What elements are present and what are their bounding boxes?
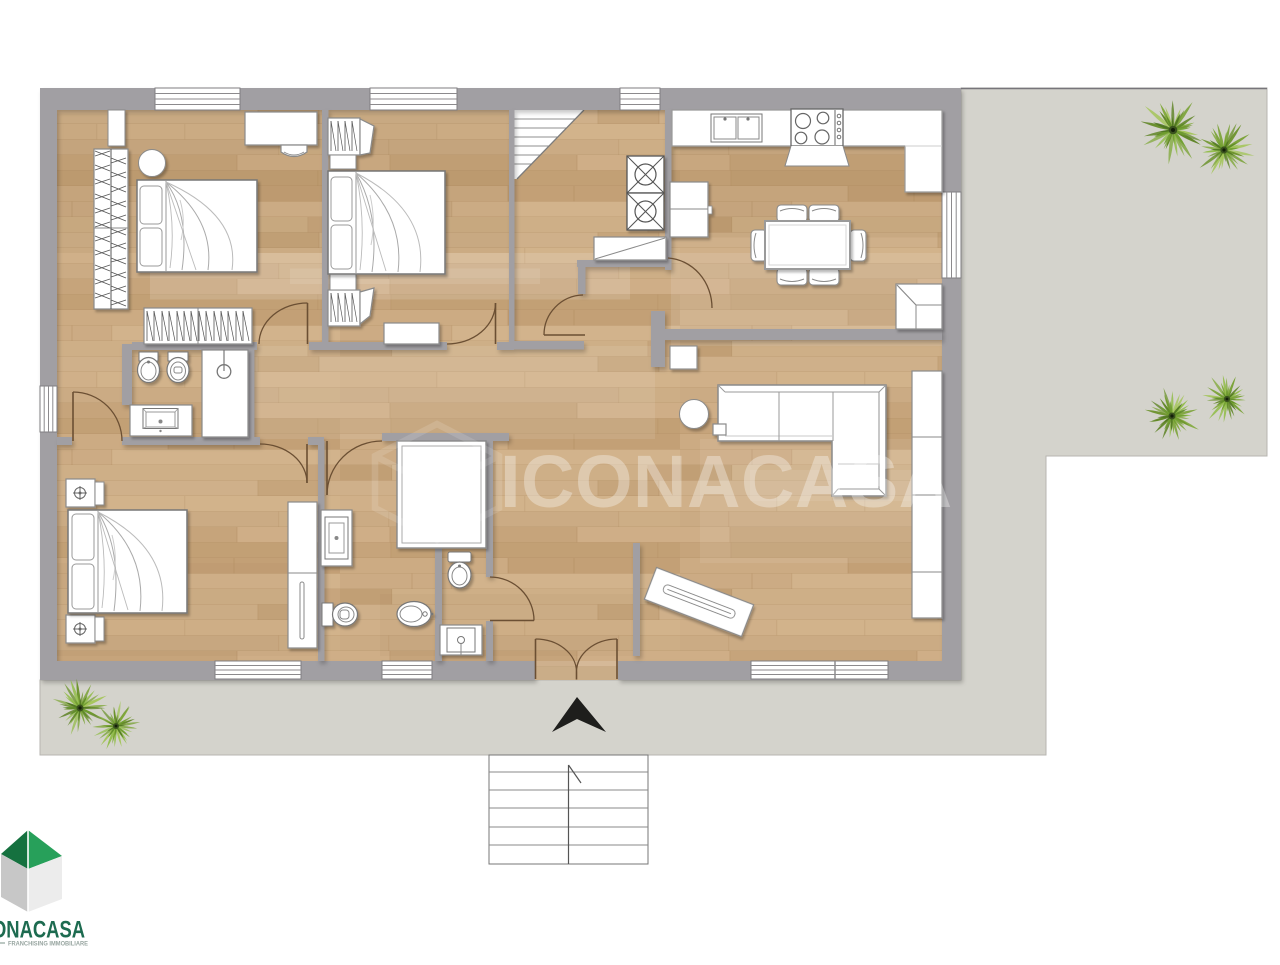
svg-text:FRANCHISING IMMOBILIARE: FRANCHISING IMMOBILIARE bbox=[8, 941, 89, 948]
svg-text:ICONACASA: ICONACASA bbox=[500, 440, 953, 523]
svg-text:ONACASA: ONACASA bbox=[0, 917, 85, 944]
